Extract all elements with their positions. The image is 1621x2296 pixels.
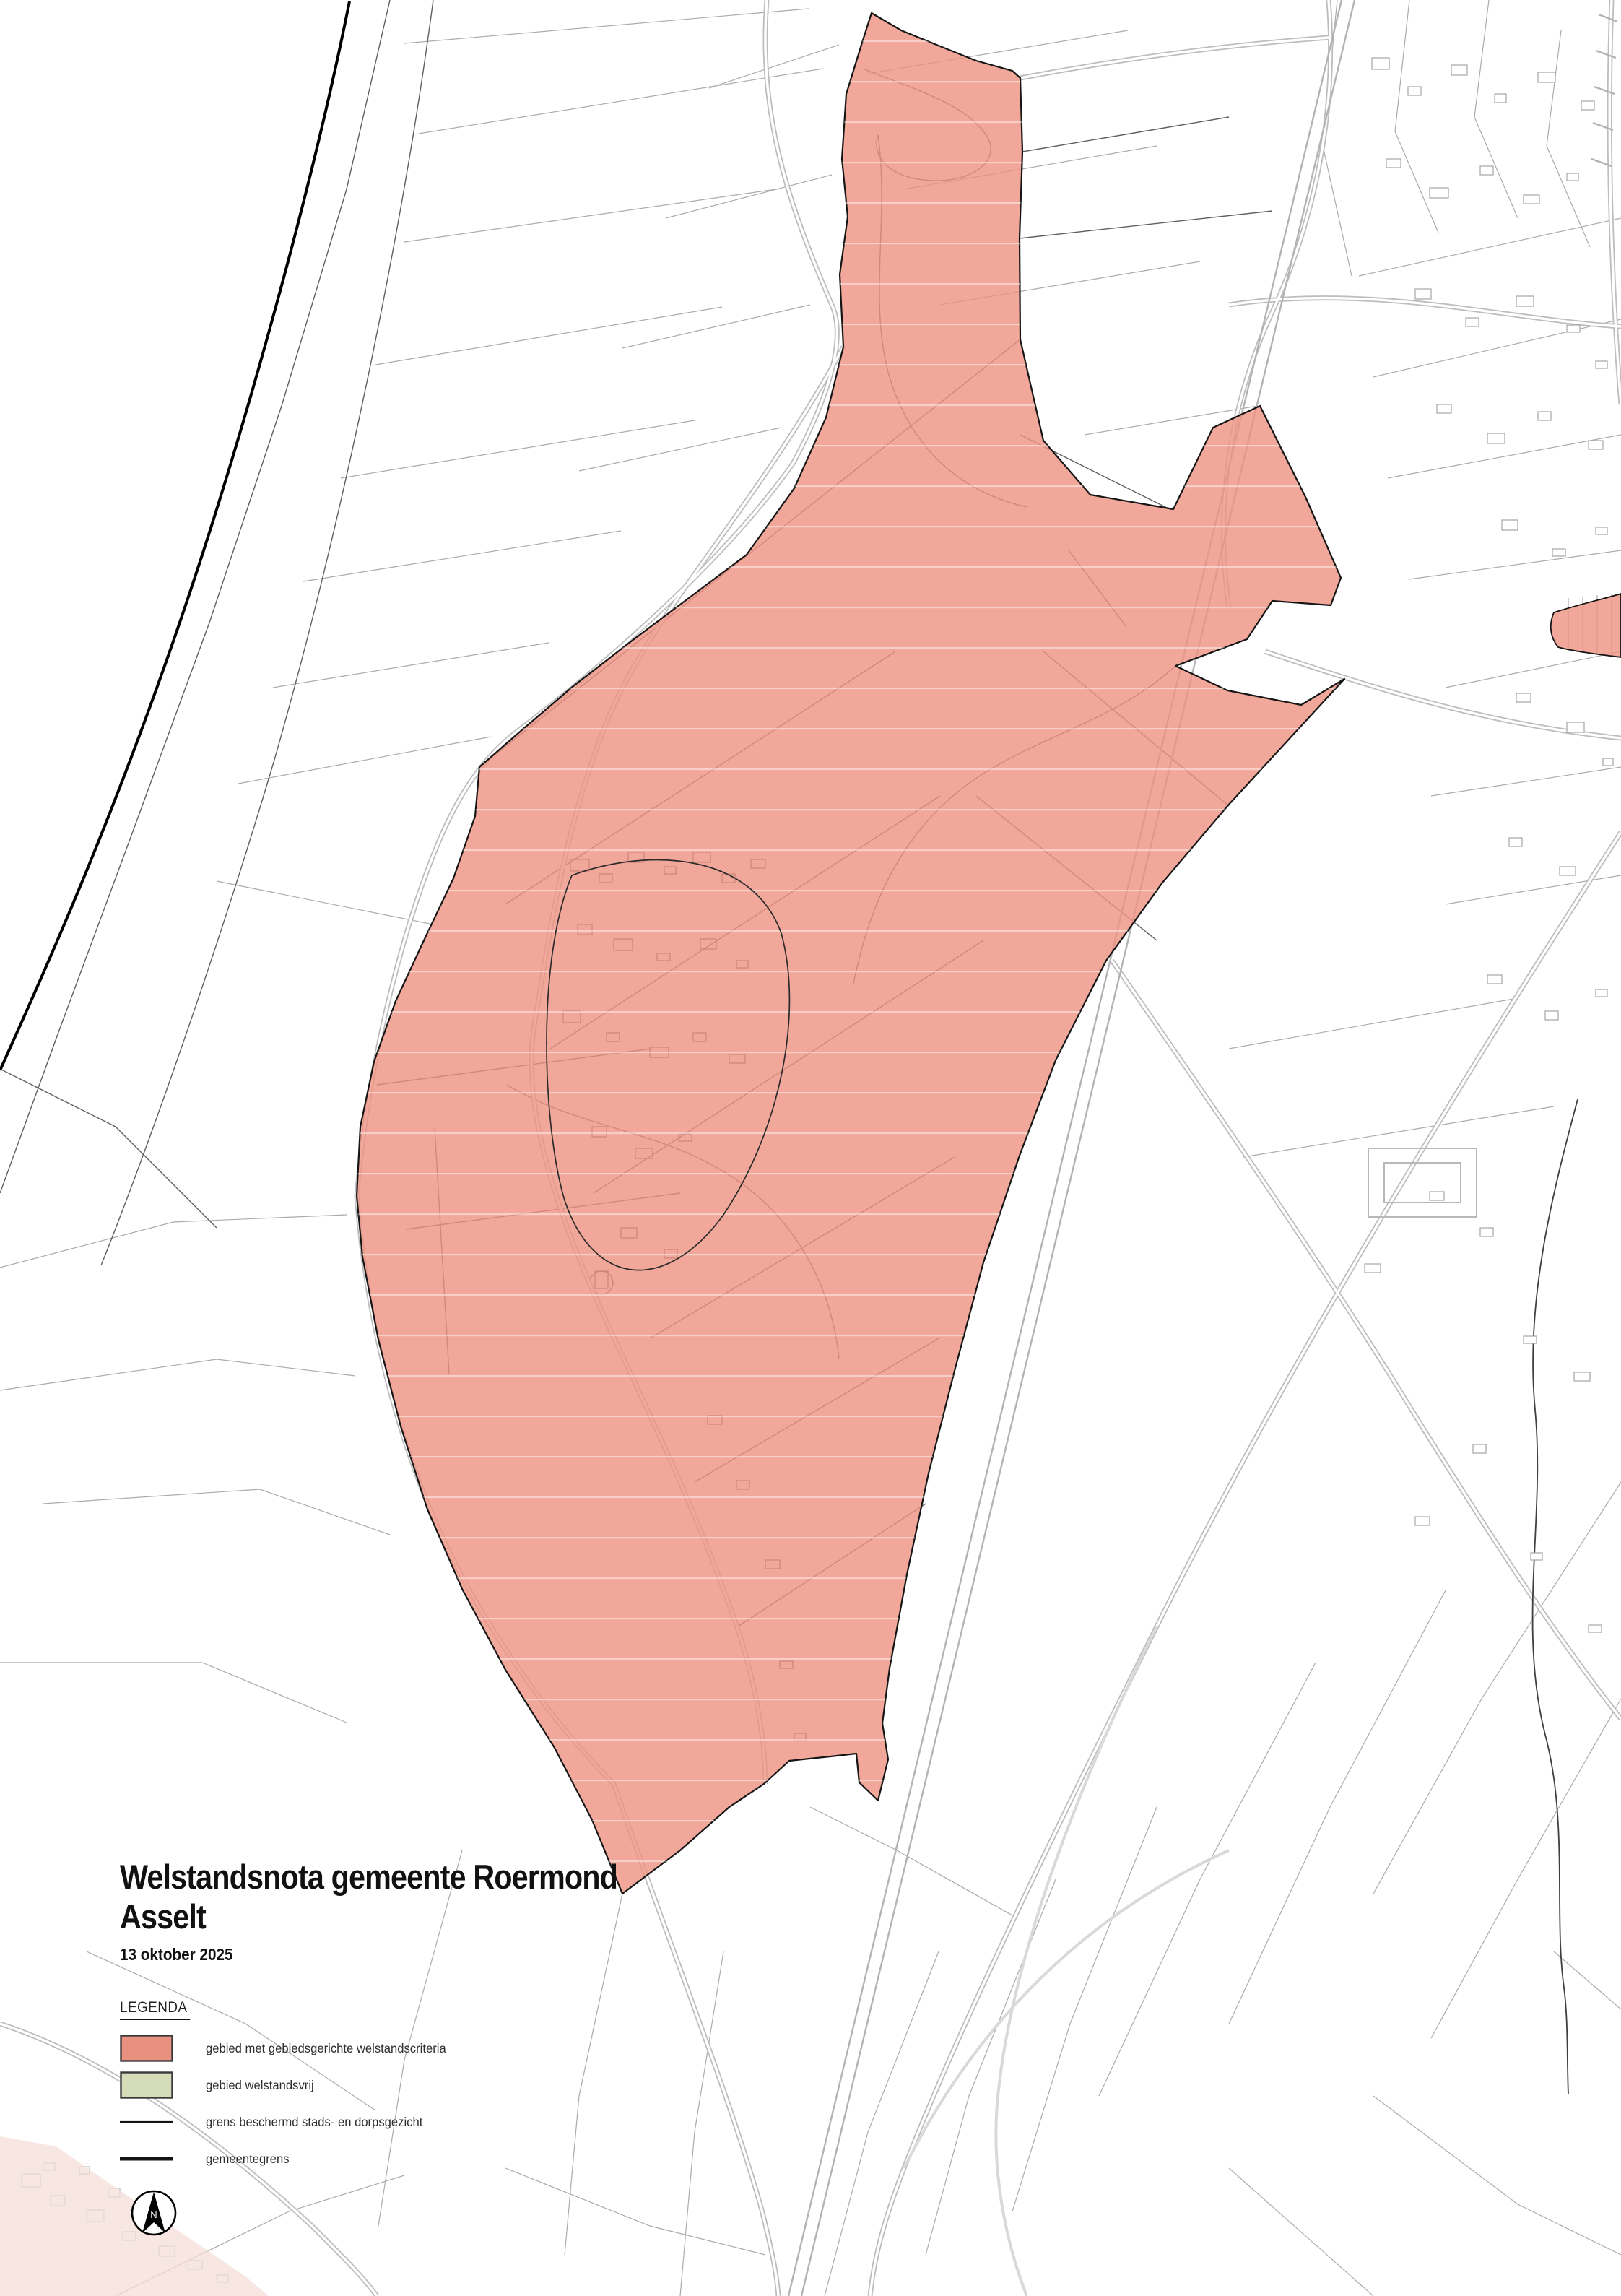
legend-heading: LEGENDA (120, 1999, 190, 2020)
legend-item-welstandsvrij: gebied welstandsvrij (120, 2071, 320, 2100)
legend-item-criteria: gebied met gebiedsgerichte welstandscrit… (120, 2034, 459, 2063)
legend-item-protected-boundary: grens beschermd stads- en dorpsgezicht (120, 2113, 434, 2131)
north-arrow-label: N (150, 2209, 157, 2220)
legend-label-welstandsvrij: gebied welstandsvrij (206, 2078, 314, 2093)
legend-item-municipal-boundary: gemeentegrens (120, 2150, 294, 2167)
legend: LEGENDA gebied met gebiedsgerichte welst… (120, 1999, 625, 2020)
criteria-area-swatch (120, 2035, 173, 2062)
map-date: 13 oktober 2025 (120, 1945, 629, 1964)
thick-line-swatch (120, 2155, 173, 2162)
north-arrow: N (130, 2189, 178, 2237)
legend-label-municipal-boundary: gemeentegrens (206, 2152, 290, 2167)
welstandsvrij-swatch (120, 2071, 173, 2099)
legend-label-criteria: gebied met gebiedsgerichte welstandscrit… (206, 2041, 446, 2056)
legend-label-protected-boundary: grens beschermd stads- en dorpsgezicht (206, 2115, 422, 2130)
thin-line-swatch (120, 2118, 173, 2126)
title-block: Welstandsnota gemeente Roermond Asselt 1… (120, 1858, 685, 1964)
page-title: Welstandsnota gemeente Roermond (120, 1858, 617, 1897)
page-subtitle: Asselt (120, 1897, 617, 1937)
